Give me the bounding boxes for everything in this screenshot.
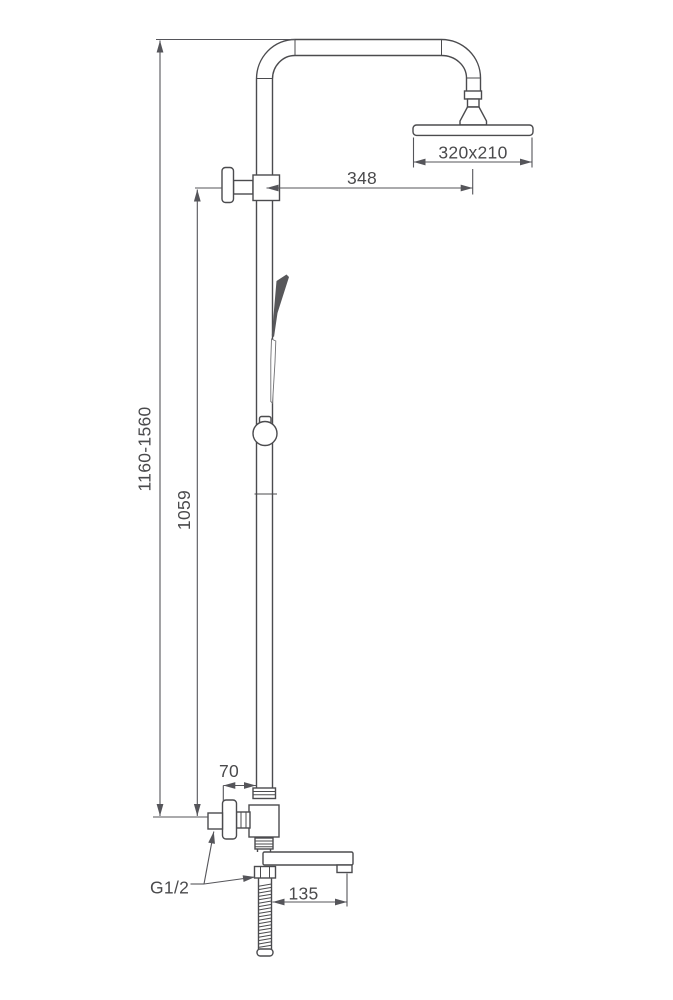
callout-thread-size: G1/2: [150, 832, 255, 898]
arm-connector-neck: [468, 99, 480, 107]
overhead-shower-head: [413, 125, 533, 135]
diverter-knob: [222, 168, 234, 203]
hand-shower-handle: [271, 339, 276, 403]
dim-head-size-label: 320x210: [438, 143, 507, 163]
spout-outlet: [337, 865, 352, 873]
hand-shower-head: [272, 275, 289, 338]
diverter-stem: [234, 181, 254, 195]
wall-escutcheon: [223, 800, 237, 839]
riser-union-nut: [253, 788, 276, 799]
dim-arm-reach: 348: [267, 168, 473, 195]
shower-dimension-drawing: 1160-1560 1059 348 320x210 70: [0, 0, 673, 1000]
mixer-valve: [208, 788, 279, 852]
mixer-body: [249, 805, 279, 837]
shower-arm: [257, 40, 487, 126]
spout-body: [263, 852, 353, 865]
dim-spout-reach-label: 135: [288, 884, 318, 904]
wall-supply-elbow: [208, 813, 223, 829]
hose-coil: [259, 884, 272, 947]
dim-overall-height-label: 1160-1560: [135, 406, 155, 491]
dim-arm-reach-label: 348: [347, 168, 377, 188]
slider-wheel: [253, 422, 277, 446]
dim-wall-to-riser-label: 70: [219, 761, 239, 781]
arm-connector-ring: [465, 91, 482, 99]
head-mount-cone: [460, 107, 487, 125]
dim-wall-to-riser: 70: [219, 761, 256, 802]
dim-inlet-to-diverter-label: 1059: [174, 490, 194, 530]
dim-spout-reach: 135: [273, 874, 348, 907]
hose-nut: [255, 867, 276, 879]
shower-hose: [255, 867, 276, 957]
hose-end-cap: [257, 949, 273, 956]
tub-spout: [263, 852, 353, 873]
dim-inlet-to-diverter: 1059: [174, 188, 222, 816]
dim-head-size: 320x210: [414, 138, 533, 168]
dimension-annotations: 1160-1560 1059 348 320x210 70: [135, 40, 533, 907]
callout-thread-size-label: G1/2: [150, 878, 189, 898]
hand-shower: [271, 275, 289, 404]
diverter-valve: [222, 168, 280, 203]
mixer-hex-nut: [237, 812, 251, 828]
